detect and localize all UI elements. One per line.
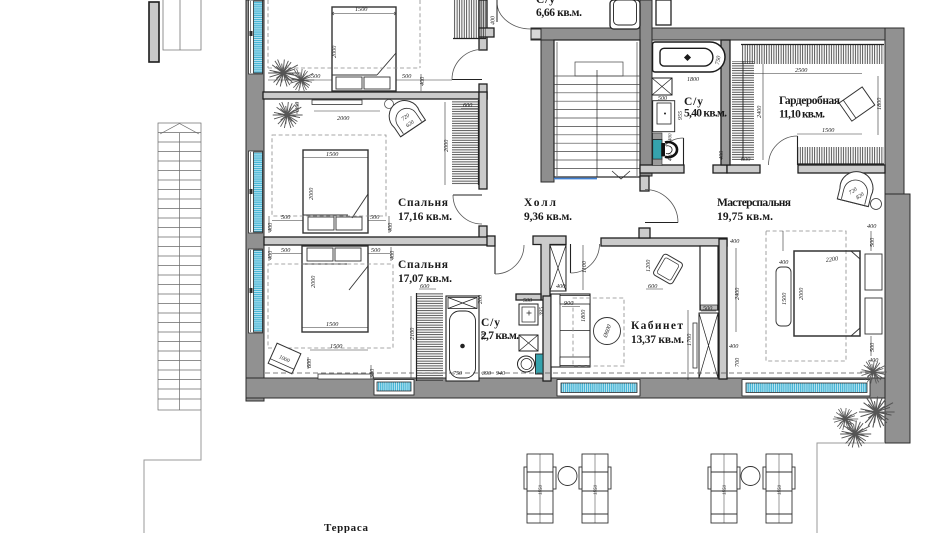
svg-text:500: 500 xyxy=(869,342,876,352)
svg-text:2200: 2200 xyxy=(825,255,839,264)
svg-text:400: 400 xyxy=(387,222,394,232)
svg-text:6,66 кв.м.: 6,66 кв.м. xyxy=(536,7,582,19)
svg-text:1700: 1700 xyxy=(686,333,693,346)
svg-text:500: 500 xyxy=(402,73,412,80)
svg-text:500: 500 xyxy=(281,247,291,254)
svg-text:400: 400 xyxy=(729,343,739,350)
svg-text:2000: 2000 xyxy=(310,275,317,288)
svg-text:600: 600 xyxy=(741,156,751,163)
svg-text:1550: 1550 xyxy=(723,485,728,496)
svg-text:С/у: С/у xyxy=(536,0,555,6)
svg-text:400: 400 xyxy=(267,222,274,232)
svg-text:350: 350 xyxy=(294,101,301,112)
svg-text:2000: 2000 xyxy=(798,287,805,300)
svg-text:11,10 кв.м.: 11,10 кв.м. xyxy=(779,109,825,121)
svg-text:400: 400 xyxy=(669,153,674,161)
svg-text:200: 200 xyxy=(478,295,484,304)
svg-text:500: 500 xyxy=(281,214,291,221)
svg-text:С/у: С/у xyxy=(481,317,500,329)
svg-text:500: 500 xyxy=(658,96,667,102)
svg-text:500: 500 xyxy=(371,247,381,254)
svg-text:1500: 1500 xyxy=(330,343,343,350)
svg-text:500: 500 xyxy=(370,214,380,221)
svg-text:400: 400 xyxy=(669,133,674,141)
svg-text:1100: 1100 xyxy=(581,260,588,273)
svg-text:17,16 кв.м.: 17,16 кв.м. xyxy=(398,211,452,223)
svg-text:9,36 кв.м.: 9,36 кв.м. xyxy=(524,211,572,223)
svg-text:400: 400 xyxy=(419,76,426,86)
svg-text:1500: 1500 xyxy=(822,127,835,134)
svg-text:500: 500 xyxy=(869,237,876,247)
svg-text:2000: 2000 xyxy=(337,115,350,122)
svg-text:400: 400 xyxy=(718,150,725,160)
svg-text:940: 940 xyxy=(496,370,505,377)
svg-text:900: 900 xyxy=(481,331,487,340)
svg-text:395: 395 xyxy=(539,307,545,317)
svg-text:Холл: Холл xyxy=(524,197,557,209)
svg-text:1200: 1200 xyxy=(645,259,652,272)
svg-text:Мастерспальня: Мастерспальня xyxy=(717,197,791,209)
svg-text:Спальня: Спальня xyxy=(398,259,448,271)
svg-text:600: 600 xyxy=(463,102,473,109)
svg-text:750: 750 xyxy=(453,371,462,377)
svg-text:13,37 кв.м.: 13,37 кв.м. xyxy=(631,334,684,346)
svg-text:1500: 1500 xyxy=(326,321,339,328)
svg-text:600: 600 xyxy=(648,283,658,290)
svg-text:500: 500 xyxy=(311,73,321,80)
svg-text:400: 400 xyxy=(556,283,566,290)
svg-text:900: 900 xyxy=(564,300,574,307)
svg-text:400: 400 xyxy=(867,223,877,230)
svg-text:1550: 1550 xyxy=(539,485,544,496)
svg-text:1550: 1550 xyxy=(594,485,599,496)
svg-text:400: 400 xyxy=(869,357,879,364)
svg-text:400: 400 xyxy=(730,238,740,245)
svg-text:С/у: С/у xyxy=(684,96,703,108)
svg-text:500: 500 xyxy=(703,305,713,312)
svg-text:Кабинет: Кабинет xyxy=(631,320,683,332)
svg-text:Спальня: Спальня xyxy=(398,197,448,209)
svg-text:1800: 1800 xyxy=(687,77,699,83)
svg-text:Терраса: Терраса xyxy=(324,522,369,533)
svg-text:500: 500 xyxy=(523,298,532,304)
svg-text:1800: 1800 xyxy=(580,309,587,322)
svg-text:1500: 1500 xyxy=(355,6,368,13)
svg-text:2000: 2000 xyxy=(308,187,315,200)
svg-text:700: 700 xyxy=(734,357,741,367)
svg-text:600: 600 xyxy=(306,358,313,368)
svg-text:400: 400 xyxy=(389,250,396,260)
svg-text:1550: 1550 xyxy=(778,485,783,496)
svg-text:2100: 2100 xyxy=(409,327,416,340)
svg-text:1800: 1800 xyxy=(876,97,883,110)
svg-text:400: 400 xyxy=(490,16,497,25)
svg-text:390: 390 xyxy=(481,371,491,377)
svg-text:Гардеробная: Гардеробная xyxy=(779,95,840,107)
svg-text:1500: 1500 xyxy=(781,292,788,305)
svg-text:2000: 2000 xyxy=(443,139,450,152)
svg-text:2400: 2400 xyxy=(756,105,763,118)
svg-text:19,75 кв.м.: 19,75 кв.м. xyxy=(717,211,773,223)
svg-text:955: 955 xyxy=(678,111,684,120)
svg-text:400: 400 xyxy=(267,250,274,260)
svg-text:600: 600 xyxy=(420,283,430,290)
svg-text:2400: 2400 xyxy=(734,287,741,300)
svg-text:1500: 1500 xyxy=(326,151,339,158)
svg-text:2000: 2000 xyxy=(331,45,338,58)
svg-text:400: 400 xyxy=(779,259,789,266)
svg-text:5,40 кв.м.: 5,40 кв.м. xyxy=(684,108,727,120)
svg-text:2500: 2500 xyxy=(795,67,808,74)
svg-text:300: 300 xyxy=(369,368,376,379)
